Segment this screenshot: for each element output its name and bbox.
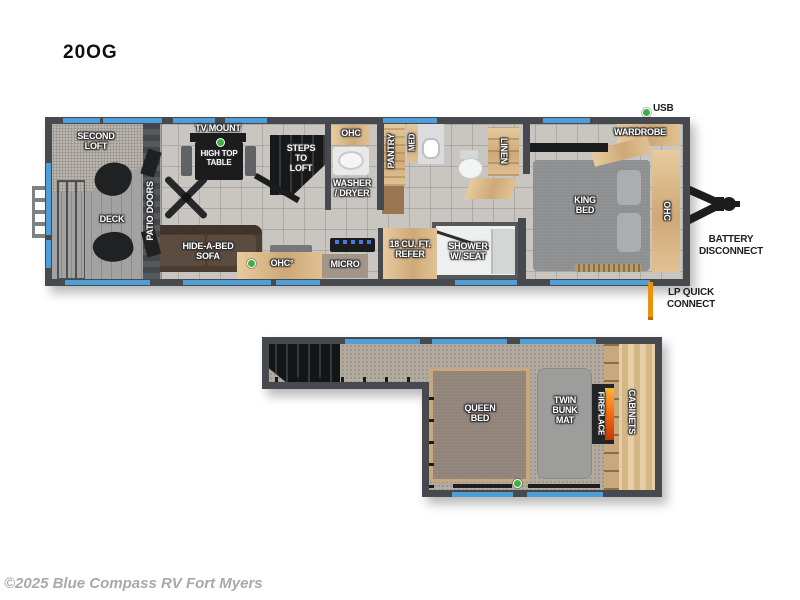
- pillow: [617, 170, 641, 205]
- loft-wall-right: [655, 337, 662, 497]
- window: [46, 163, 51, 235]
- refer-label: 18 CU. FT. REFER: [380, 240, 440, 260]
- bath-wall: [518, 218, 526, 279]
- window: [550, 280, 650, 285]
- high-top-table-label: HIGH TOP TABLE: [196, 150, 242, 168]
- fan-hub: [182, 193, 191, 202]
- cabinets-label: CABINETS: [626, 387, 636, 437]
- twin-bunk-label: TWIN BUNK MAT: [539, 396, 591, 426]
- shower-label: SHOWER W/ SEAT: [435, 242, 501, 262]
- window: [520, 339, 596, 344]
- fireplace-label: FIREPLACE: [596, 388, 605, 438]
- deck-label: DECK: [90, 215, 134, 225]
- bath-wall: [523, 120, 530, 174]
- lp-quick-connect-label: LP QUICK CONNECT: [660, 287, 722, 310]
- led-indicator-loft: [513, 479, 522, 488]
- battery-disconnect-label: BATTERY DISCONNECT: [688, 234, 774, 257]
- loft-rail-posts: [275, 377, 425, 382]
- window: [63, 118, 100, 123]
- model-title: 20OG: [63, 42, 118, 64]
- lp-pipe: [648, 282, 653, 320]
- window: [103, 118, 162, 123]
- pantry-base: [382, 186, 404, 214]
- pantry-label: PANTRY: [387, 126, 397, 176]
- window: [455, 280, 517, 285]
- bath-sink: [422, 138, 440, 159]
- queen-bed: [430, 368, 529, 482]
- patio-doors-label: PATIO DOORS: [146, 174, 156, 248]
- stove: [330, 238, 375, 252]
- queen-bed-label: QUEEN BED: [454, 404, 506, 424]
- fireplace-flame: [605, 388, 614, 440]
- ohc-kitchen-label: OHC°: [258, 259, 306, 269]
- med-label: MED: [409, 122, 418, 162]
- window: [452, 492, 513, 497]
- trailer-hitch: [683, 176, 741, 236]
- washer-door: [338, 151, 364, 170]
- loft-wall-room-left: [422, 382, 429, 497]
- steps-to-loft-label: STEPS TO LOFT: [276, 144, 326, 174]
- window: [527, 492, 603, 497]
- closet-wall: [377, 120, 384, 210]
- wall-right: [683, 117, 690, 286]
- king-bed-label: KING BED: [560, 196, 610, 216]
- bed-foot-slats: [575, 264, 641, 272]
- led-indicator-tv: [216, 138, 225, 147]
- stove-knobs: [335, 240, 371, 244]
- loft-railing: [453, 484, 512, 488]
- micro-label: MICRO: [322, 260, 368, 270]
- toilet: [458, 158, 483, 179]
- window: [345, 339, 420, 344]
- loft-rail-posts: [429, 392, 434, 488]
- ohc-bedroom-label: OHC: [661, 186, 671, 236]
- wardrobe-label: WARDROBE: [605, 128, 675, 138]
- pillow: [617, 213, 641, 252]
- loft-wall-hall-bottom: [262, 382, 429, 389]
- bath-vanity: [464, 178, 518, 199]
- usb-label: USB: [653, 103, 681, 115]
- window: [65, 280, 150, 285]
- deck-railing: [57, 180, 85, 280]
- washer-dryer: [333, 147, 369, 175]
- bedroom-tv-bar: [530, 143, 608, 152]
- washer-dryer-label: WASHER / DRYER: [326, 179, 378, 199]
- floorplan-page: 20OG SECOND LOFT DECK PATIO DOORS TV MOU…: [0, 0, 800, 600]
- window: [276, 280, 320, 285]
- window: [432, 339, 507, 344]
- loft-railing: [528, 484, 600, 488]
- copyright-text: ©2025 Blue Compass RV Fort Myers: [4, 575, 263, 592]
- second-loft-label: SECOND LOFT: [57, 132, 135, 152]
- tv-mount-label: TV MOUNT: [183, 124, 253, 134]
- sofa-label: HIDE-A-BED SOFA: [164, 242, 252, 262]
- window: [543, 118, 590, 123]
- ohc-hall-label: OHC: [333, 129, 369, 139]
- led-indicator-usb: [642, 108, 651, 117]
- window: [183, 280, 271, 285]
- led-indicator-kitchen: [247, 259, 256, 268]
- linen-label: LINEN: [498, 126, 508, 176]
- sofa-back: [150, 225, 262, 234]
- window: [46, 240, 51, 268]
- dinette-bench: [245, 146, 256, 176]
